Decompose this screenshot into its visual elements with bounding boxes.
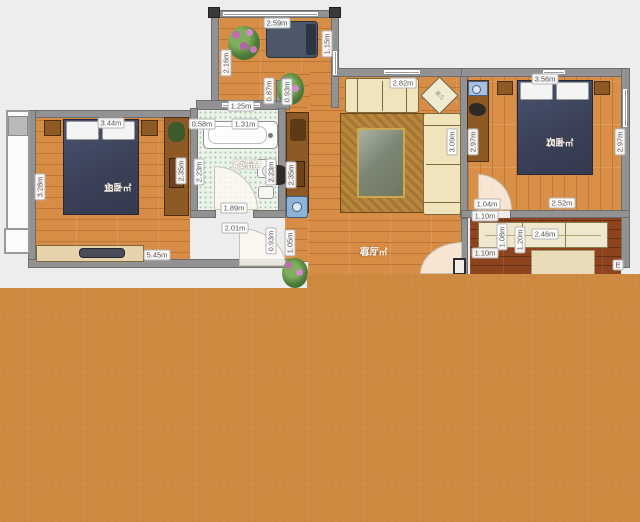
orange-overlay-main <box>0 288 640 522</box>
wall-bedroom2-bottom-b <box>510 210 630 218</box>
bedroom2-pillow-left <box>520 82 553 100</box>
hall-door-arc[interactable] <box>239 228 286 266</box>
bathtub[interactable] <box>203 121 278 149</box>
living-rug-center <box>357 128 405 198</box>
tv[interactable] <box>79 248 125 258</box>
ac-unit <box>8 116 28 136</box>
potted-plant-living[interactable] <box>282 258 308 288</box>
potted-plant-balcony[interactable] <box>228 26 260 60</box>
entry-door[interactable] <box>453 258 466 275</box>
nightstand-bedroom2-left[interactable] <box>497 81 513 95</box>
hall-chair[interactable] <box>269 165 289 185</box>
wall-washroom-bottom-a <box>190 210 216 218</box>
desk-chair[interactable] <box>469 103 486 116</box>
wall-washroom-right <box>278 108 286 218</box>
third-room-wardrobe[interactable] <box>478 222 608 248</box>
bay-window-left-lower <box>4 228 30 254</box>
nightstand-master-right[interactable] <box>141 120 158 136</box>
corner-post-left <box>208 7 220 18</box>
window-washroom-top <box>221 102 261 108</box>
window-right-wall <box>622 88 628 128</box>
master-pillow-right <box>102 121 135 140</box>
tea-table-label: 茶几 <box>433 89 445 101</box>
wall-bedroom2-bottom-a <box>461 210 477 218</box>
window-balcony-top <box>222 11 319 17</box>
master-wardrobe[interactable] <box>164 117 189 216</box>
window-bedroom2-top <box>542 69 566 75</box>
daybed-pillow <box>306 24 316 55</box>
sofa-vertical[interactable] <box>423 113 461 215</box>
wall-washroom-bottom-b <box>253 210 286 218</box>
potted-plant-corridor[interactable] <box>277 73 304 105</box>
floor-plan-canvas[interactable]: 茶几 主卧13.2 ㎡盥洗室4.2 ㎡客厅41.9 ㎡次卧10.6 ㎡ 2.59… <box>0 0 640 522</box>
bedroom2-pillow-right <box>556 82 589 100</box>
orange-overlay-step <box>307 274 640 289</box>
nightstand-bedroom2-right[interactable] <box>594 81 610 95</box>
window-living-top <box>383 69 421 75</box>
master-pillow-left <box>66 121 99 140</box>
wall-washroom-left <box>190 108 198 218</box>
desk-chair-plan[interactable] <box>468 81 488 96</box>
nightstand-master-left[interactable] <box>44 120 61 136</box>
wall-balcony-left <box>211 10 219 108</box>
sofa-horizontal[interactable] <box>345 78 419 113</box>
washbasin[interactable] <box>258 186 274 199</box>
window-balcony-right <box>332 50 338 76</box>
corner-post-right <box>329 7 341 18</box>
third-room-bed[interactable] <box>531 250 595 275</box>
washing-machine[interactable] <box>286 196 308 218</box>
